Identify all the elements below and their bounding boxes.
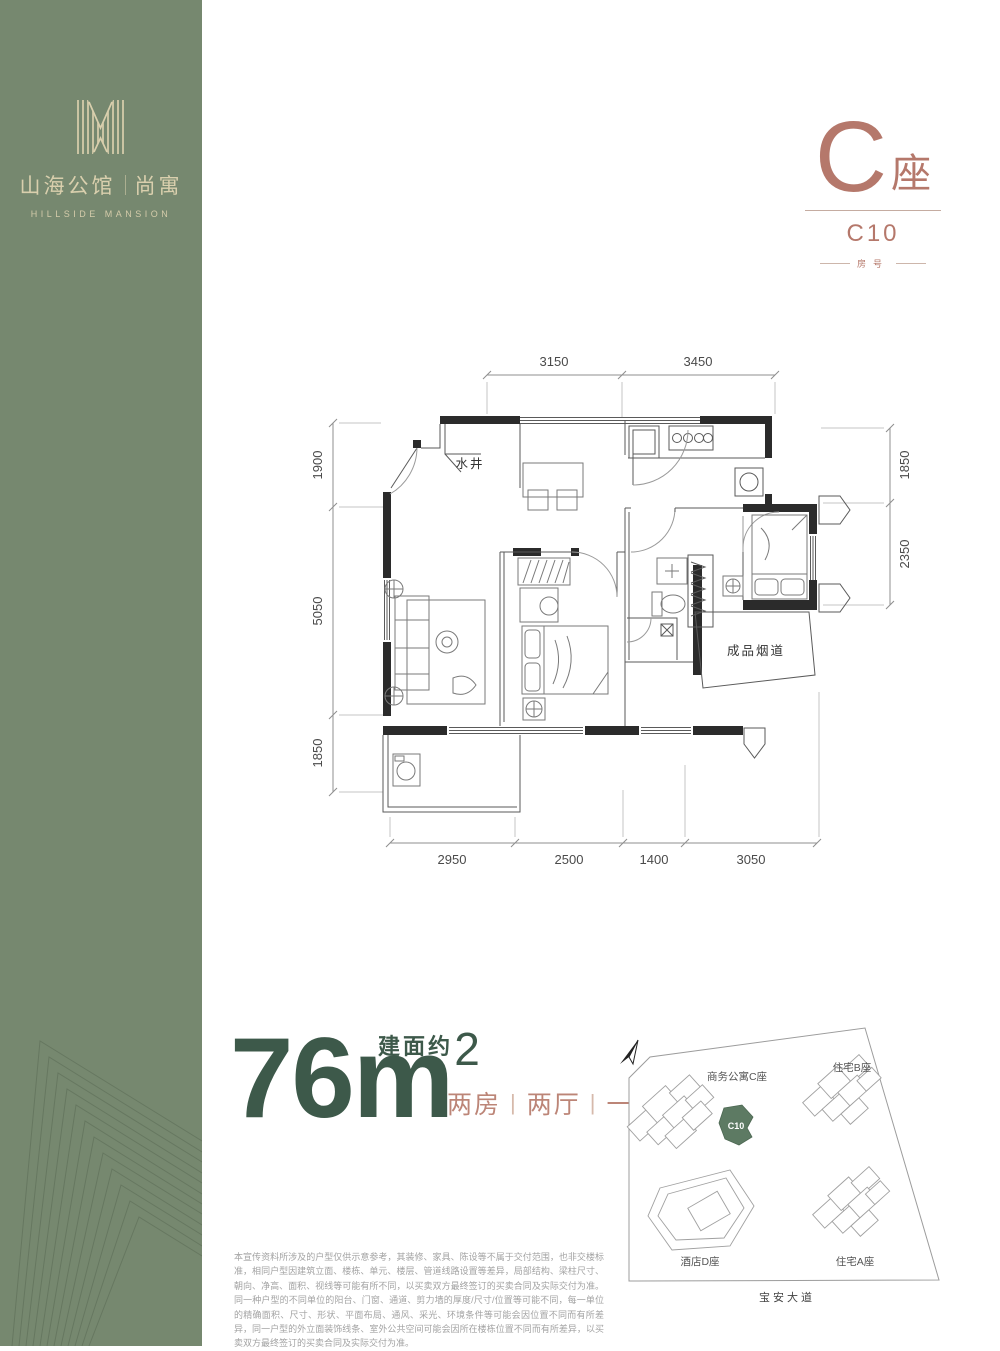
brand-divider [125,175,126,195]
label-tower-a: 住宅A座 [836,1255,875,1268]
room-config-divider: | [510,1090,518,1116]
unit-number-caption: 房号 [803,257,943,270]
label-tower-c: 商务公寓C座 [707,1070,767,1083]
water-well-label: 水井 [455,457,484,471]
tower-suffix: 座 [891,156,931,192]
brand-name-en: HILLSIDE MANSION [0,209,202,219]
floorplan: 3150 3450 1900 5050 1850 1850 2350 2950 … [295,330,955,915]
tower-letter: C [815,112,887,202]
area-value: 76 [230,1015,353,1142]
svg-text:3450: 3450 [684,354,713,369]
svg-text:5050: 5050 [310,597,325,626]
room-config-bedrooms: 两房 [447,1085,501,1121]
label-road: 宝安大道 [759,1290,815,1304]
caption-line-right [896,263,926,264]
brand-name-main: 山海公馆 [20,170,116,200]
label-tower-b: 住宅B座 [833,1061,872,1074]
flue-label: 成品烟道 [727,644,785,658]
brand-name-cn: 山海公馆 尚寓 [0,170,202,200]
chevron-pattern [0,986,202,1346]
dimension-labels: 3150 3450 1900 5050 1850 1850 2350 2950 … [310,354,912,867]
unit-number: C10 [803,220,943,248]
svg-text:2500: 2500 [555,852,584,867]
label-hotel-d: 酒店D座 [680,1255,719,1268]
siteplan: C10 商务公寓C座 住宅B座 酒店D座 住宅A座 宝安大道 [612,1018,972,1318]
area-superscript: 2 [454,1026,480,1072]
svg-text:1400: 1400 [640,852,669,867]
brand-name-sub: 尚寓 [135,170,183,200]
highlight-unit-label: C10 [728,1121,745,1131]
walls-thin [383,418,850,813]
svg-text:3150: 3150 [540,354,569,369]
svg-text:2350: 2350 [897,540,912,569]
area-prefix: 建面约 [378,1036,453,1058]
unit-header: C 座 C10 房号 [803,112,943,270]
siteplan-drawing: C10 商务公寓C座 住宅B座 酒店D座 住宅A座 宝安大道 [612,1018,972,1313]
svg-text:3050: 3050 [737,852,766,867]
brand-logo: 山海公馆 尚寓 HILLSIDE MANSION [0,96,202,219]
room-config-divider: | [590,1090,598,1116]
svg-text:2950: 2950 [438,852,467,867]
room-config-halls: 两厅 [527,1085,581,1121]
brand-sidebar: 山海公馆 尚寓 HILLSIDE MANSION [0,0,202,1346]
mansion-monogram-icon [75,96,127,158]
disclaimer-text: 本宣传资料所涉及的户型仅供示意参考，其装修、家具、陈设等不属于交付范围，也非交楼… [234,1250,604,1351]
caption-line-left [820,263,850,264]
floorplan-drawing: 3150 3450 1900 5050 1850 1850 2350 2950 … [295,330,955,910]
svg-text:1850: 1850 [310,739,325,768]
area-block: 76m2 建面约 [230,1022,480,1136]
caption-text: 房号 [857,257,889,270]
north-arrow-icon [620,1040,638,1064]
svg-text:1900: 1900 [310,451,325,480]
svg-text:1850: 1850 [897,451,912,480]
